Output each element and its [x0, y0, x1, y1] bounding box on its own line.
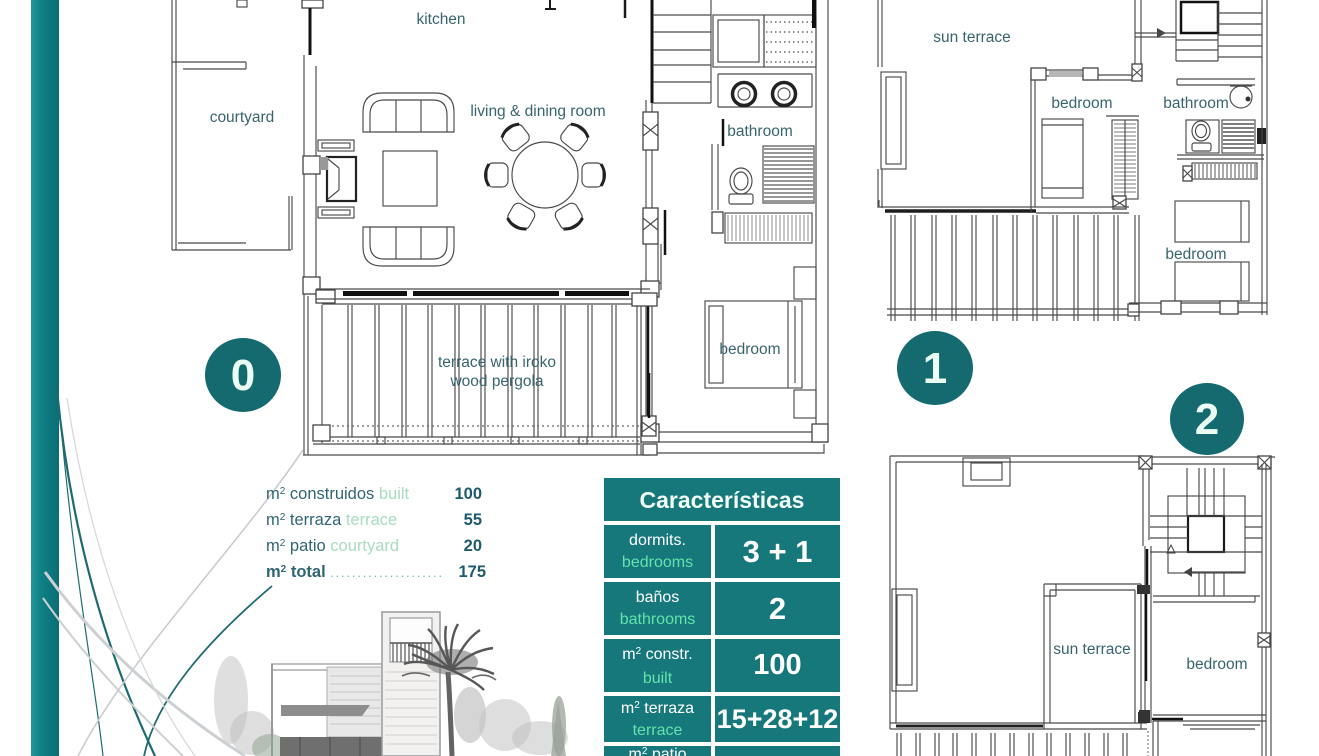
- svg-text:terrace with iroko: terrace with iroko: [438, 354, 556, 371]
- svg-text:bathroom: bathroom: [727, 123, 792, 140]
- svg-text:bedroom: bedroom: [1165, 246, 1226, 263]
- svg-text:sun terrace: sun terrace: [933, 29, 1011, 46]
- svg-text:bedroom: bedroom: [1186, 656, 1247, 673]
- svg-text:1: 1: [923, 344, 947, 393]
- svg-text:kitchen: kitchen: [416, 11, 465, 28]
- svg-text:bedroom: bedroom: [1051, 95, 1112, 112]
- svg-text:bathroom: bathroom: [1163, 95, 1228, 112]
- svg-text:0: 0: [231, 351, 255, 400]
- svg-text:courtyard: courtyard: [210, 109, 275, 126]
- svg-text:wood pergola: wood pergola: [449, 373, 543, 390]
- svg-text:sun terrace: sun terrace: [1053, 641, 1131, 658]
- svg-text:living & dining room: living & dining room: [470, 103, 605, 120]
- svg-text:2: 2: [1195, 395, 1219, 444]
- svg-text:bedroom: bedroom: [719, 341, 780, 358]
